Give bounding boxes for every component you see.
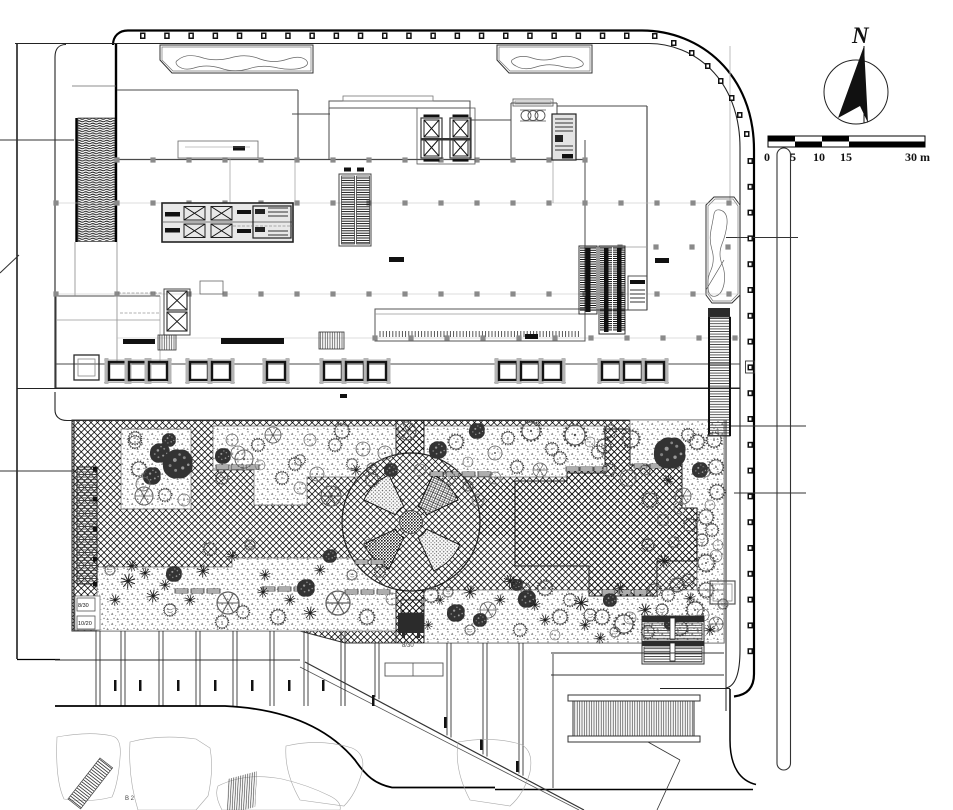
svg-text:30 m: 30 m [905, 150, 930, 164]
svg-text:8/30: 8/30 [78, 603, 89, 609]
svg-text:15: 15 [840, 150, 852, 164]
svg-text:8/30: 8/30 [402, 643, 414, 649]
svg-text:B 2: B 2 [125, 796, 135, 802]
svg-text:10: 10 [813, 150, 825, 164]
svg-text:N: N [851, 23, 870, 48]
svg-text:10/20: 10/20 [78, 621, 92, 627]
svg-text:0: 0 [764, 150, 770, 164]
svg-text:5: 5 [790, 150, 796, 164]
